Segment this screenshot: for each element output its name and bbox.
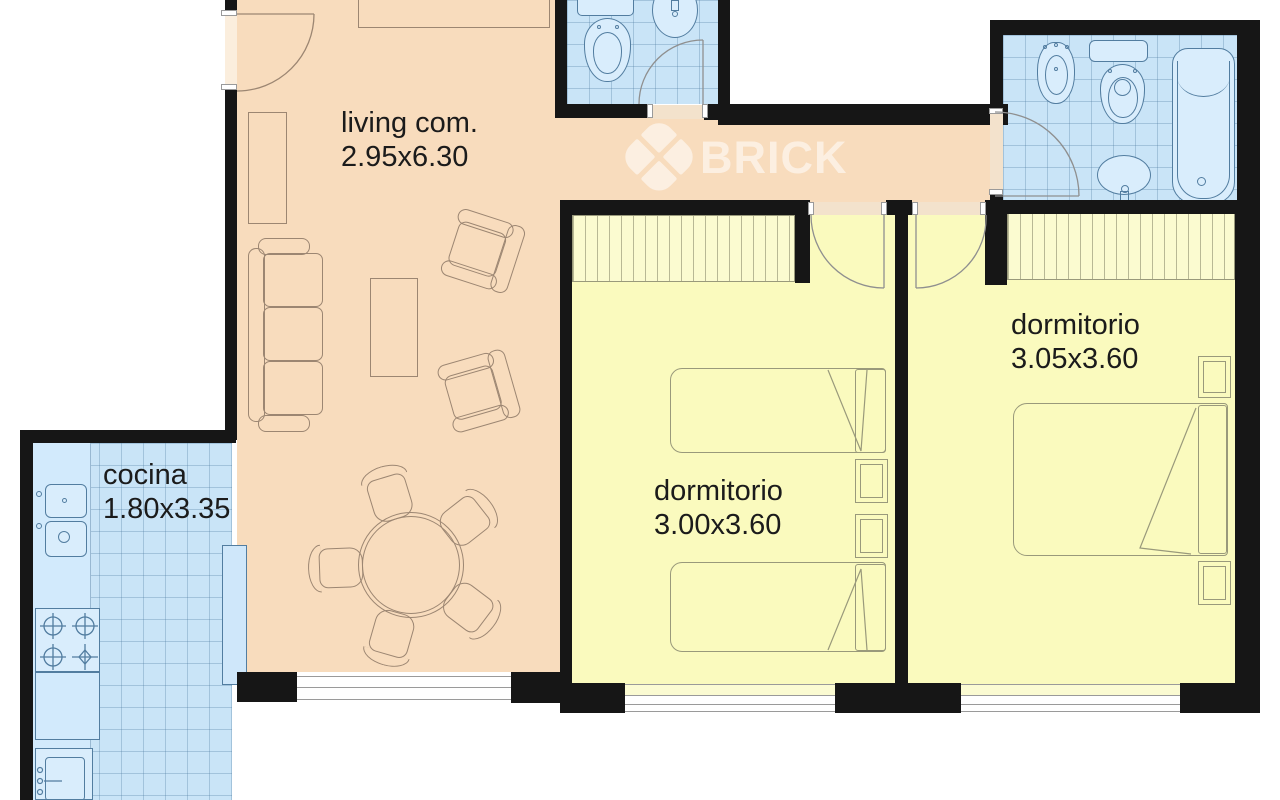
- room-dims: 3.05x3.60: [1011, 342, 1140, 376]
- floor-plan: living com. 2.95x6.30 cocina 1.80x3.35 d…: [0, 0, 1280, 800]
- room-dims: 2.95x6.30: [341, 140, 478, 174]
- washer-controls-icon: [38, 768, 63, 795]
- entrance-door-swing: [237, 14, 314, 91]
- watermark-brand: BRICK: [700, 132, 848, 184]
- room-label-dormitorio1: dormitorio 3.00x3.60: [654, 474, 783, 542]
- room-name: cocina: [103, 458, 230, 492]
- plan-linework: [0, 0, 1280, 800]
- room-dims: 1.80x3.35: [103, 492, 230, 526]
- room-name: dormitorio: [1011, 308, 1140, 342]
- bathroom2-door-swing: [995, 112, 1079, 196]
- room-name: living com.: [341, 106, 478, 140]
- bathroom1-door-swing: [639, 40, 703, 104]
- room-label-living: living com. 2.95x6.30: [341, 106, 478, 174]
- bedroom2-door-swing: [916, 215, 986, 288]
- room-name: dormitorio: [654, 474, 783, 508]
- room-label-cocina: cocina 1.80x3.35: [103, 458, 230, 526]
- bed-blanket-folds: [828, 370, 1196, 650]
- bedroom1-door-swing: [811, 215, 884, 288]
- room-label-dormitorio2: dormitorio 3.05x3.60: [1011, 308, 1140, 376]
- room-dims: 3.00x3.60: [654, 508, 783, 542]
- stove-burners-icon: [40, 613, 98, 670]
